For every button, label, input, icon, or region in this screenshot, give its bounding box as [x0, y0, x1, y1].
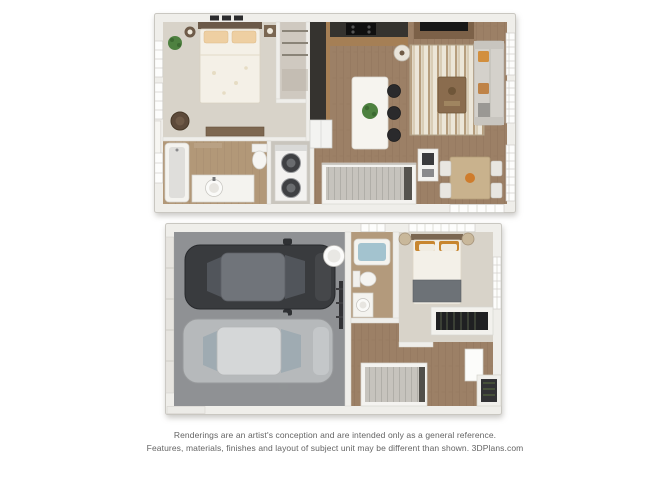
bed	[411, 234, 463, 304]
bed	[198, 22, 262, 103]
disclaimer-line-2: Features, materials, finishes and layout…	[0, 442, 670, 455]
bathtub	[165, 143, 189, 202]
refrigerator	[310, 120, 332, 148]
bathtub	[354, 239, 390, 265]
lower-stairs	[361, 363, 427, 406]
tv	[420, 22, 468, 31]
lower-floor-plan	[165, 223, 502, 415]
potted-plant	[168, 36, 182, 50]
stairwell-void	[404, 167, 412, 200]
hall-cabinet	[418, 149, 438, 181]
round-side-table	[394, 45, 410, 61]
side-mirror	[283, 239, 292, 245]
stove	[346, 23, 376, 35]
accent-chair	[171, 112, 189, 130]
kitchen-island	[352, 77, 388, 149]
upper-floor-svg	[154, 13, 516, 213]
nightstand-right	[264, 25, 276, 37]
side-mirror	[279, 313, 288, 319]
car-dark	[185, 239, 335, 316]
dresser	[206, 127, 264, 136]
bar-stools	[388, 85, 401, 142]
utility-closet	[477, 375, 501, 406]
upper-floor-plan	[154, 13, 516, 213]
blanket	[413, 280, 461, 302]
upper-laundry	[275, 145, 307, 201]
throw-pillow	[478, 51, 489, 62]
stairwell-void	[419, 367, 425, 402]
toilet	[353, 271, 376, 287]
vanity-sink	[192, 175, 254, 202]
garage-door	[166, 237, 174, 393]
toilet	[252, 144, 267, 169]
tv-console	[414, 22, 474, 39]
bath-shelf	[194, 143, 222, 148]
car-silver	[183, 313, 333, 390]
vanity-sink	[353, 293, 373, 317]
disclaimer-line-1: Renderings are an artist's conception an…	[0, 429, 670, 442]
lower-closet	[431, 307, 493, 335]
throw-blanket	[478, 103, 490, 117]
water-heater	[324, 246, 345, 267]
centerpiece	[465, 173, 475, 183]
island-plant	[362, 103, 378, 119]
windshield	[285, 255, 305, 299]
disclaimer: Renderings are an artist's conception an…	[0, 429, 670, 454]
coffee-table	[438, 77, 466, 113]
exterior-step	[167, 407, 205, 414]
windshield	[281, 329, 301, 373]
lower-floor-svg	[165, 223, 502, 415]
nightstand-left	[185, 27, 196, 38]
throw-pillow	[478, 83, 489, 94]
wall-art	[210, 16, 243, 21]
upper-kitchen	[310, 22, 410, 149]
floor-plan-sheet: Renderings are an artist's conception an…	[0, 0, 670, 480]
sofa	[474, 41, 504, 125]
upper-stairs	[322, 163, 416, 204]
side-mirror	[279, 384, 288, 390]
